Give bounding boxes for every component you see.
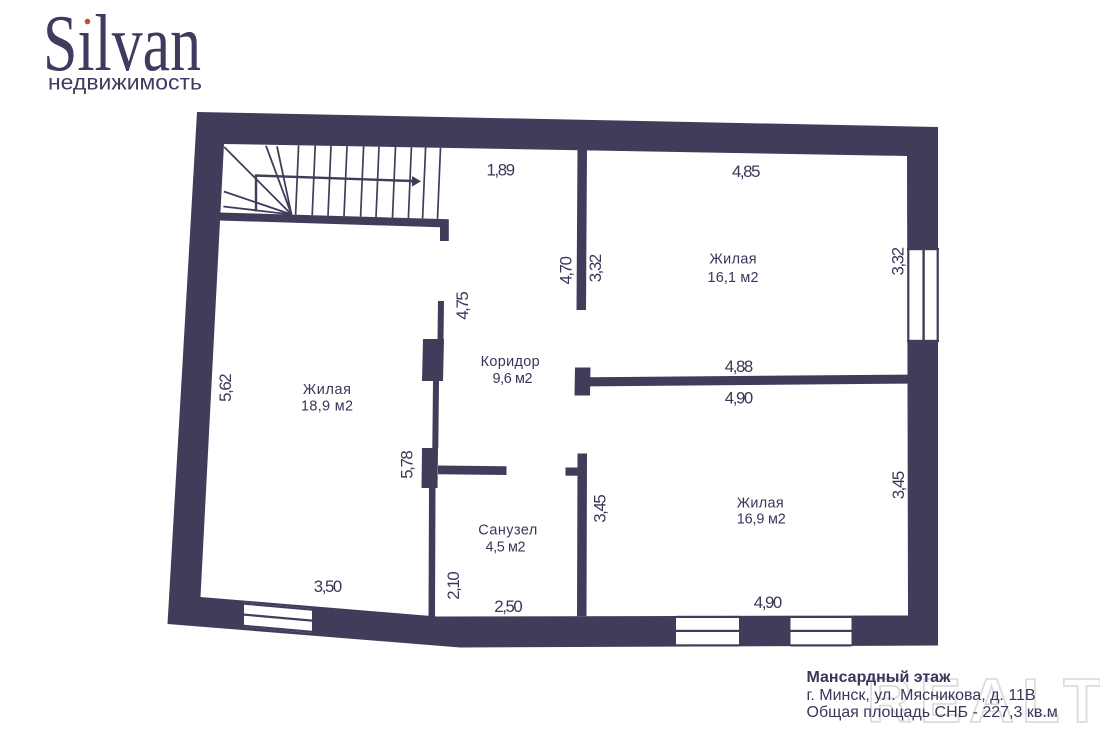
svg-text:4,70: 4,70: [557, 256, 576, 285]
svg-text:3,32: 3,32: [586, 254, 605, 283]
svg-text:18,9 м2: 18,9 м2: [301, 398, 353, 414]
svg-text:2,10: 2,10: [444, 571, 463, 600]
svg-text:1,89: 1,89: [487, 161, 516, 180]
svg-text:5,62: 5,62: [216, 373, 235, 402]
svg-text:Жилая: Жилая: [303, 382, 351, 398]
svg-text:3,45: 3,45: [889, 471, 908, 500]
svg-text:3,32: 3,32: [889, 247, 908, 276]
svg-text:2,50: 2,50: [494, 597, 523, 616]
svg-text:16,9 м2: 16,9 м2: [737, 512, 786, 528]
svg-text:3,45: 3,45: [591, 494, 610, 523]
svg-text:4,90: 4,90: [725, 388, 754, 407]
svg-text:4,88: 4,88: [725, 357, 754, 376]
svg-text:Жилая: Жилая: [737, 495, 784, 511]
svg-text:16,1 м2: 16,1 м2: [708, 270, 759, 286]
svg-text:4,75: 4,75: [453, 291, 472, 320]
svg-text:Жилая: Жилая: [710, 252, 757, 268]
svg-text:недвижимость: недвижимость: [48, 70, 202, 94]
svg-text:5,78: 5,78: [398, 450, 417, 479]
svg-text:3,50: 3,50: [314, 577, 343, 596]
svg-text:Коридор: Коридор: [481, 354, 540, 370]
svg-text:4,90: 4,90: [754, 593, 783, 612]
svg-text:4,5 м2: 4,5 м2: [486, 540, 526, 556]
svg-text:9,6 м2: 9,6 м2: [493, 371, 533, 387]
svg-text:4,85: 4,85: [732, 162, 761, 181]
svg-text:Санузел: Санузел: [478, 522, 537, 538]
